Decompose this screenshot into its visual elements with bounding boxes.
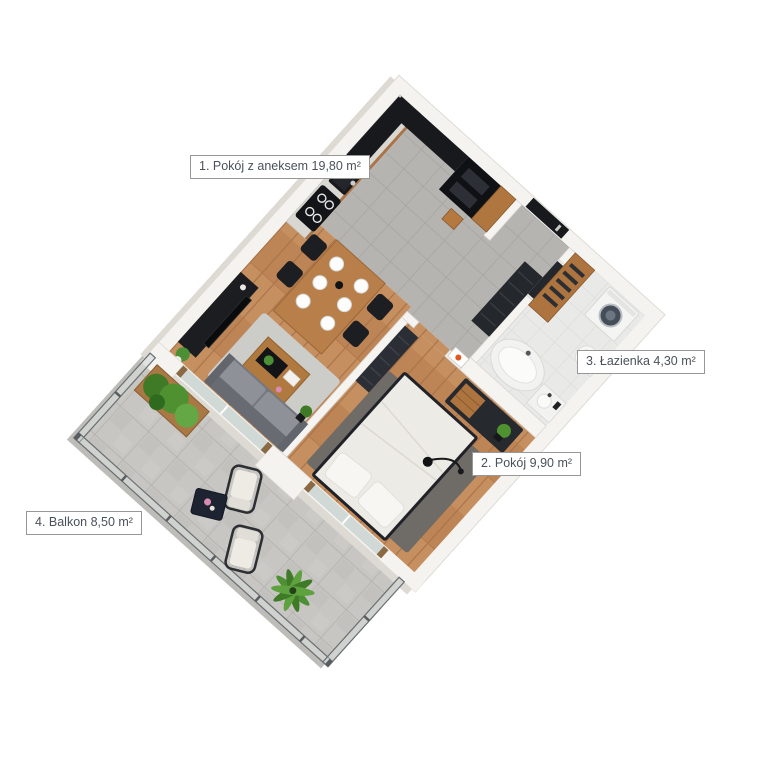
floorplan-page: 1. Pokój z aneksem 19,80 m² 2. Pokój 9,9…: [0, 0, 768, 768]
label-room-2: 2. Pokój 9,90 m²: [472, 452, 581, 476]
label-room-4: 4. Balkon 8,50 m²: [26, 511, 142, 535]
label-room-3: 3. Łazienka 4,30 m²: [577, 350, 705, 374]
label-room-1: 1. Pokój z aneksem 19,80 m²: [190, 155, 370, 179]
floorplan-canvas: [0, 0, 768, 768]
